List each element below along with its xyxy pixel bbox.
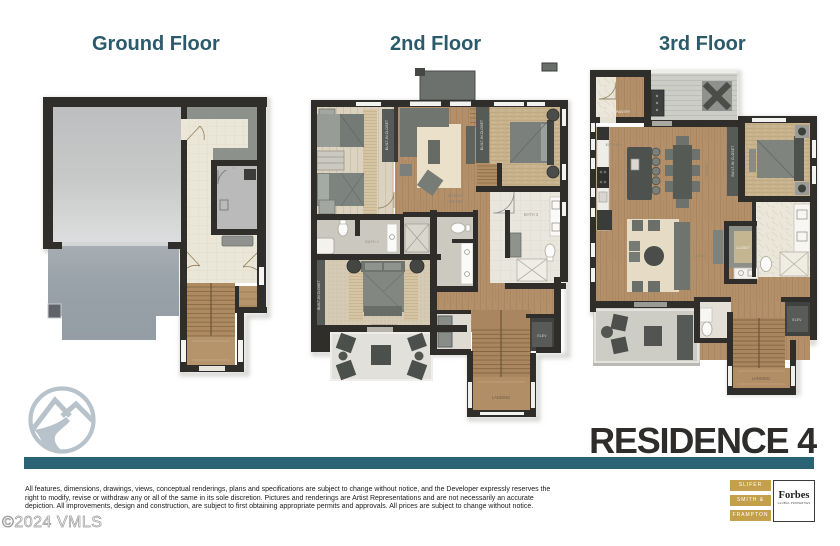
svg-text:BUILT-IN CLOSET: BUILT-IN CLOSET (731, 145, 735, 176)
svg-text:BUILT-IN CLOSET: BUILT-IN CLOSET (480, 120, 484, 150)
svg-text:ELEV: ELEV (792, 318, 802, 322)
svg-text:BATH 2: BATH 2 (365, 239, 379, 244)
svg-text:BATH 3: BATH 3 (524, 212, 539, 217)
svg-text:CLOSET: CLOSET (736, 246, 750, 250)
svg-text:LANDING: LANDING (752, 376, 771, 381)
svg-text:FAMILY: FAMILY (448, 193, 464, 198)
svg-text:ROOM: ROOM (449, 199, 463, 204)
svg-text:KITCHEN: KITCHEN (606, 143, 623, 147)
svg-text:LANDING: LANDING (492, 395, 511, 400)
svg-text:DINING: DINING (705, 164, 709, 177)
svg-text:BUILT-IN CLOSET: BUILT-IN CLOSET (385, 120, 389, 150)
svg-text:BUILT-IN CLOSET: BUILT-IN CLOSET (317, 280, 321, 310)
svg-text:PANTRY: PANTRY (616, 110, 631, 114)
svg-text:ELEV: ELEV (537, 334, 547, 338)
svg-text:.: . (211, 349, 212, 353)
svg-text:LIVING: LIVING (694, 254, 706, 258)
